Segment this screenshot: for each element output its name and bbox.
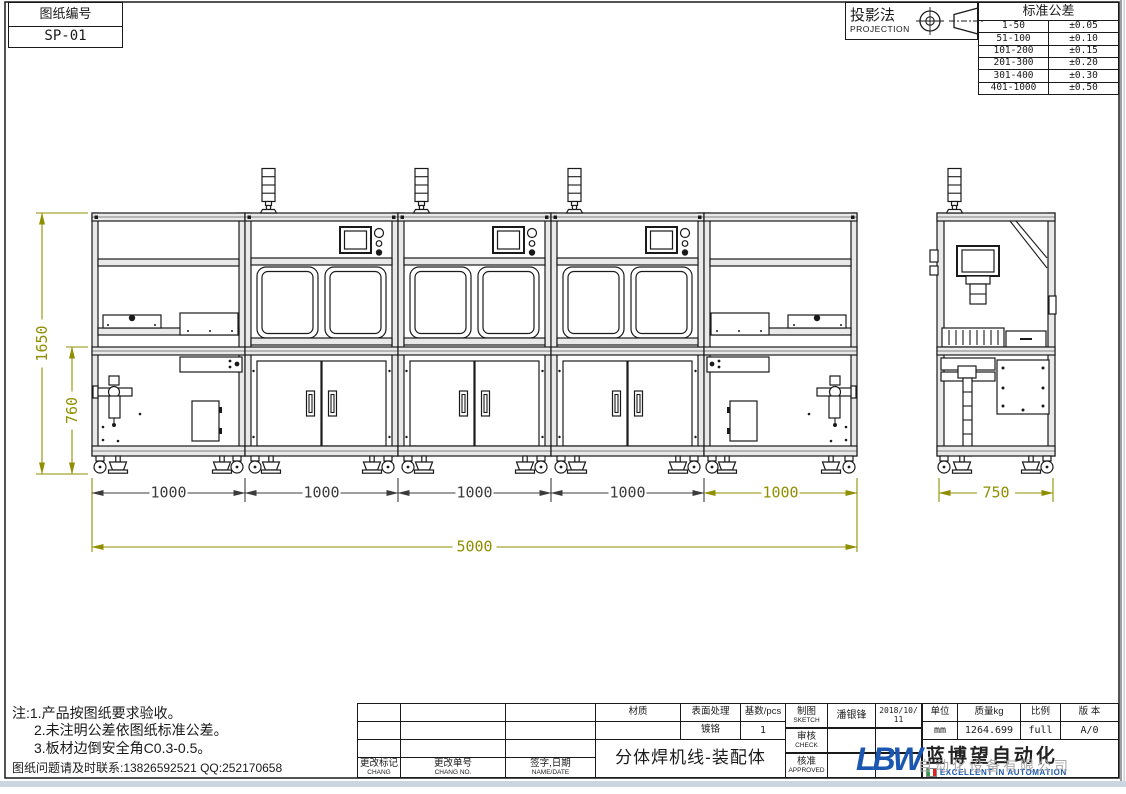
cad-drawing-canvas: 1650 760 1000 1000 1000 1000 1000 (0, 0, 1126, 794)
tolerance-range: 301-400 (979, 70, 1049, 81)
assembly-title-cell: 分体焊机线-装配体 (595, 739, 786, 778)
tolerance-value: ±0.15 (1049, 46, 1118, 57)
qty-label: 基数/pcs (745, 707, 781, 717)
projection-label-en: PROJECTION (850, 25, 910, 34)
scale-value: full (1028, 725, 1052, 736)
scale-header: 比例 (1020, 703, 1061, 722)
contact-info: 图纸问题请及时联系:13826592521 QQ:252170658 (12, 761, 357, 776)
surface-label: 表面处理 (691, 707, 729, 717)
dim-text-bay3: 1000 (456, 484, 492, 502)
surface-header: 表面处理 (680, 703, 741, 722)
dim-text-750: 750 (982, 484, 1009, 502)
tolerance-row: 401-1000 ±0.50 (979, 82, 1118, 94)
scale-label: 比例 (1031, 707, 1050, 717)
tolerance-title: 标准公差 (1022, 3, 1074, 20)
sign-date-label: 签字,日期 (530, 759, 571, 769)
qty-header: 基数/pcs (740, 703, 786, 722)
change-cell-empty (505, 739, 596, 758)
sketch-name: 潘银锋 (837, 710, 867, 721)
mass-header: 质量kg (957, 703, 1021, 722)
logo-lbw-text: LBW (856, 743, 920, 775)
sketch-name-cell: 潘银锋 (827, 703, 876, 728)
change-no-header: 更改单号 CHANG NO. (400, 757, 506, 778)
dim-text-bay1: 1000 (150, 484, 186, 502)
side-view (930, 169, 1056, 474)
tolerance-row: 101-200 ±0.15 (979, 45, 1118, 57)
qty-value: 1 (760, 725, 766, 736)
check-label-en: CHECK (795, 742, 818, 749)
material-label: 材质 (628, 707, 647, 717)
drawing-no-value: SP-01 (8, 26, 123, 48)
tolerance-range: 101-200 (979, 46, 1049, 57)
version-value-cell: A/0 (1060, 721, 1119, 740)
sketch-date-cell: 2018/10/11 (875, 703, 922, 728)
change-no-label-en: CHANG NO. (435, 769, 472, 776)
tolerance-range: 201-300 (979, 58, 1049, 69)
tolerance-value: ±0.10 (1049, 33, 1118, 44)
sketch-date: 2018/10/11 (876, 707, 921, 725)
check-label: 审核 (797, 732, 816, 742)
qty-value-cell: 1 (740, 721, 786, 740)
first-angle-projection-icon (914, 4, 986, 38)
change-cell-empty (400, 739, 506, 758)
approve-header: 核准 APPROVED (785, 753, 828, 778)
dim-text-760: 760 (63, 397, 81, 424)
tolerance-row: 1-50 ±0.05 (979, 20, 1118, 32)
tolerance-row: 301-400 ±0.30 (979, 69, 1118, 81)
dim-text-bay4: 1000 (609, 484, 645, 502)
sketch-label-en: SKETCH (793, 717, 819, 724)
note-line: 3.板材边倒安全角C0.3-0.5。 (12, 740, 357, 757)
sketch-label: 制图 (797, 707, 816, 717)
tolerance-value: ±0.05 (1049, 21, 1118, 32)
dim-text-bay5: 1000 (762, 484, 798, 502)
material-header: 材质 (595, 703, 681, 722)
dim-text-5000: 5000 (456, 538, 492, 556)
note-line: 注:1.产品按图纸要求验收。 (12, 705, 357, 722)
tolerance-range: 1-50 (979, 21, 1049, 32)
change-cell-empty (400, 703, 506, 722)
tolerance-value: ±0.20 (1049, 58, 1118, 69)
approve-label: 核准 (797, 757, 816, 767)
change-cell-empty (357, 721, 401, 740)
tolerance-range: 401-1000 (979, 83, 1049, 94)
material-value-cell (595, 721, 681, 740)
change-cell-empty (400, 721, 506, 740)
change-no-label: 更改单号 (434, 759, 472, 769)
drawing-no-value-text: SP-01 (44, 29, 86, 44)
mass-value-cell: 1264.699 (957, 721, 1021, 740)
sheet-border (5, 2, 1119, 778)
check-header: 审核 CHECK (785, 728, 828, 753)
tolerance-range: 51-100 (979, 33, 1049, 44)
projection-label: 投影法 (850, 8, 895, 25)
drawing-notes: 注:1.产品按图纸要求验收。 2.未注明公差依图纸标准公差。 3.板材边倒安全角… (12, 705, 357, 776)
tolerance-table: 标准公差 1-50 ±0.05 51-100 ±0.10 101-200 ±0.… (978, 2, 1119, 95)
projection-box: 投影法 PROJECTION (845, 2, 978, 40)
change-mark-header: 更改标记 CHANG (357, 757, 401, 778)
change-cell-empty (505, 721, 596, 740)
tolerance-row: 201-300 ±0.20 (979, 57, 1118, 69)
unit-value-cell: mm (922, 721, 958, 740)
surface-value-cell: 镀铬 (680, 721, 741, 740)
tolerance-value: ±0.30 (1049, 70, 1118, 81)
dimension-total-width: 5000 (92, 538, 857, 556)
sign-date-label-en: NAME/DATE (532, 769, 569, 776)
unit-value: mm (934, 725, 946, 736)
company-logo: 自动化设备有限公司 LBW 蓝博望自动化 EXCELLENT IN AUTOMA… (856, 741, 1118, 777)
mass-value: 1264.699 (965, 725, 1013, 736)
version-value: A/0 (1080, 725, 1098, 736)
dimension-height-total: 1650 (33, 213, 88, 474)
dim-text-bay2: 1000 (303, 484, 339, 502)
assembly-title: 分体焊机线-装配体 (615, 749, 766, 768)
tolerance-value: ±0.50 (1049, 83, 1118, 94)
dimension-height-lower: 760 (63, 347, 88, 474)
approve-label-en: APPROVED (788, 767, 824, 774)
drawing-no-label-text: 图纸编号 (39, 7, 91, 21)
drawing-sheet: 1650 760 1000 1000 1000 1000 1000 (0, 0, 1126, 794)
dim-text-1650: 1650 (33, 325, 51, 361)
tolerance-row: 51-100 ±0.10 (979, 32, 1118, 44)
change-cell-empty (505, 703, 596, 722)
drawing-no-label: 图纸编号 (8, 2, 123, 27)
unit-label: 单位 (930, 707, 949, 717)
mass-label: 质量kg (974, 707, 1003, 717)
version-label: 版 本 (1079, 707, 1101, 717)
change-cell-empty (357, 739, 401, 758)
sketch-header: 制图 SKETCH (785, 703, 828, 728)
feet-and-casters (94, 456, 855, 473)
note-line: 2.未注明公差依图纸标准公差。 (12, 722, 357, 739)
change-cell-empty (357, 703, 401, 722)
logo-ghost-text: 自动化设备有限公司 (918, 756, 1071, 776)
change-mark-label-en: CHANG (367, 769, 390, 776)
signal-tower (261, 169, 583, 214)
change-mark-label: 更改标记 (360, 759, 398, 769)
dimension-side-width: 750 (939, 478, 1053, 502)
main-front-view (92, 169, 857, 474)
version-header: 版 本 (1060, 703, 1119, 722)
sign-date-header: 签字,日期 NAME/DATE (505, 757, 596, 778)
unit-header: 单位 (922, 703, 958, 722)
surface-value: 镀铬 (701, 725, 720, 735)
scale-value-cell: full (1020, 721, 1061, 740)
